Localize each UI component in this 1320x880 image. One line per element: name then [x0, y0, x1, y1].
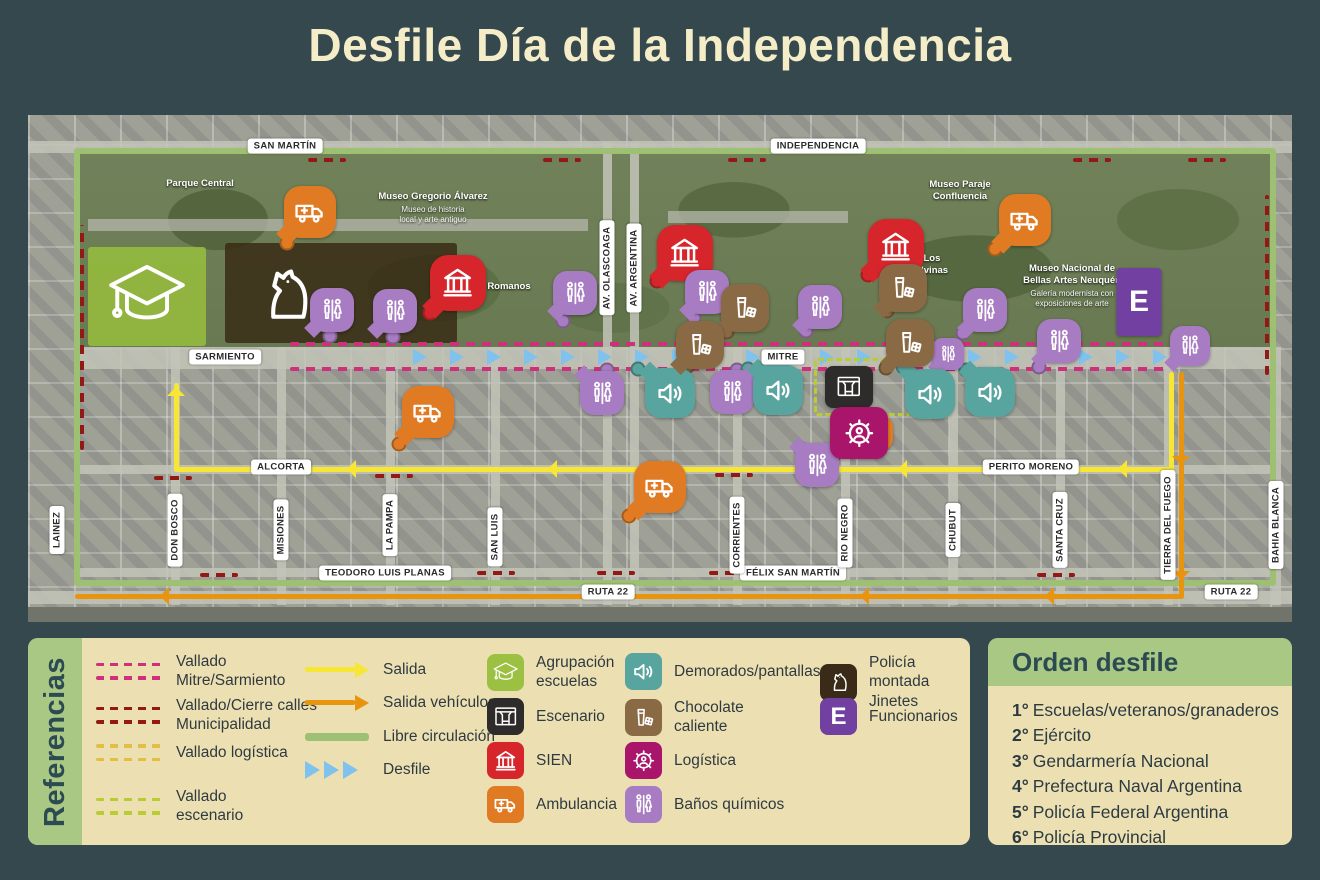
legend-item-vallado-logistica: Vallado logística — [96, 743, 288, 762]
banos-icon — [560, 278, 591, 309]
place-label: Galería modernista con exposiciones de a… — [1030, 289, 1113, 309]
barrier-dashed — [1188, 158, 1226, 162]
desfile-triangle-icon — [1079, 349, 1093, 365]
barrier-dashed — [308, 158, 346, 162]
parade-map: E SAN MARTÍNINDEPENDENCIASARMIENTOMITREA… — [28, 115, 1292, 622]
route-line — [174, 383, 179, 472]
banos-quimicos-marker — [710, 370, 754, 414]
desfile-triangle-icon — [524, 349, 538, 365]
salida-arrow-icon — [355, 662, 369, 678]
barrier-dashed — [200, 573, 238, 577]
legend-item-logistica: Logística — [625, 742, 736, 779]
desfile-triangle-icon — [450, 349, 464, 365]
gear-person-icon — [839, 415, 880, 451]
legend-item-escenario: Escenario — [487, 698, 605, 735]
banos-icon — [1044, 326, 1075, 357]
demorados-pantallas-marker — [905, 369, 955, 419]
barrier-dashed — [543, 158, 581, 162]
banos-icon — [937, 343, 959, 365]
desfile-triangle-icon — [1005, 349, 1019, 365]
speaker-icon — [973, 375, 1008, 410]
ambulancia-marker — [999, 194, 1051, 246]
route-arrow — [889, 460, 907, 478]
amb-icon — [1007, 202, 1043, 238]
orden-desfile-list: 1°Escuelas/veteranos/granaderos 2°Ejérci… — [988, 686, 1292, 850]
street-label: TIERRA DEL FUEGO — [1161, 470, 1176, 580]
ambulancia-marker — [402, 386, 454, 438]
street-label: FÉLIX SAN MARTÍN — [740, 566, 846, 581]
ambulance-icon — [487, 786, 524, 823]
graduation-cap-icon — [104, 254, 190, 340]
route-arrow — [1109, 460, 1127, 478]
parking-strip — [668, 211, 848, 223]
route-line — [1179, 372, 1184, 599]
legend-panel: Referencias Vallado Mitre/Sarmiento Vall… — [28, 638, 970, 845]
barrier-dashed — [80, 225, 84, 450]
speaker-icon — [913, 377, 948, 412]
banos-icon — [587, 378, 618, 409]
banos-quimicos-marker — [373, 289, 417, 333]
place-label: Museo Nacional de Bellas Artes Neuquén — [1023, 263, 1121, 287]
orden-item: 2°Ejército — [1012, 723, 1278, 748]
street-label: AV. OLASCOAGA — [600, 221, 615, 316]
graduation-cap-icon — [487, 654, 524, 691]
legend-item-vallado-municipalidad: Vallado/Cierre calles Municipalidad — [96, 696, 317, 735]
banos-quimicos-marker — [310, 288, 354, 332]
amb-icon — [410, 394, 446, 430]
desfile-triangle-icon — [1116, 349, 1130, 365]
legend-item-chocolate: Chocolate caliente — [625, 698, 744, 737]
temple-icon — [487, 742, 524, 779]
speaker-icon — [625, 653, 662, 690]
street-label: MITRE — [761, 350, 804, 365]
street-label: TEODORO LUIS PLANAS — [319, 566, 451, 581]
route-arrow — [851, 587, 869, 605]
barrier-dashed — [154, 476, 192, 480]
place-label: Museo Paraje Confluencia — [929, 179, 990, 203]
street-label: MISIONES — [274, 500, 289, 561]
page-title: Desfile Día de la Independencia — [0, 18, 1320, 72]
orden-item: 1°Escuelas/veteranos/granaderos — [1012, 698, 1278, 723]
banos-icon — [970, 295, 1001, 326]
place-label: Museo de historia local y arte antiguo — [399, 205, 466, 225]
barrier-dashed — [1073, 158, 1111, 162]
street-label: SANTA CRUZ — [1053, 492, 1068, 568]
barrier-dashed — [1037, 573, 1075, 577]
stage-icon — [487, 698, 524, 735]
route-arrow — [167, 378, 185, 396]
orden-item: 5°Policía Federal Argentina — [1012, 800, 1278, 825]
speaker-icon — [653, 376, 688, 411]
route-arrow — [151, 587, 169, 605]
banos-quimicos-marker — [580, 371, 624, 415]
route-arrow — [1036, 587, 1054, 605]
orden-item: 6°Policía Provincial — [1012, 825, 1278, 850]
street-label: BAHIA BLANCA — [1269, 481, 1284, 569]
street-label: ALCORTA — [251, 460, 311, 475]
desfile-triangles-icon — [305, 761, 358, 779]
ambulancia-marker — [634, 461, 686, 513]
street-label: INDEPENDENCIA — [771, 139, 866, 154]
chocolate-caliente-marker — [879, 264, 927, 312]
legend-item-demorados: Demorados/pantallas — [625, 653, 820, 690]
escenario-marker — [825, 366, 873, 408]
street-label: AV. ARGENTINA — [627, 224, 642, 313]
banos-quimicos-marker — [553, 271, 597, 315]
place-label: Museo Gregorio Álvarez — [378, 191, 487, 203]
amb-icon — [292, 194, 328, 230]
legend-item-banos: Baños químicos — [625, 786, 784, 823]
salida-vehiculos-arrow-icon — [355, 695, 369, 711]
route-arrow — [338, 460, 356, 478]
choc-icon — [886, 271, 920, 305]
street-label: RIO NEGRO — [838, 498, 853, 567]
legend-item-vallado-mitre: Vallado Mitre/Sarmiento — [96, 652, 285, 691]
horse-icon — [820, 664, 857, 701]
banos-quimicos-marker — [1037, 319, 1081, 363]
demorados-pantallas-marker — [645, 368, 695, 418]
choc-icon — [893, 326, 927, 360]
barrier-dashed — [1265, 195, 1269, 375]
logistica-marker — [830, 407, 888, 459]
chocolate-caliente-marker — [676, 321, 724, 369]
banos-icon — [802, 450, 833, 481]
demorados-pantallas-marker — [753, 365, 803, 415]
sien-icon — [665, 233, 704, 272]
street-label: CORRIENTES — [730, 496, 745, 573]
route-line — [74, 580, 1276, 586]
banos-quimicos-marker — [932, 338, 964, 370]
street-label: SAN MARTÍN — [248, 139, 323, 154]
place-label: s Romanos — [479, 281, 530, 293]
street-label: LAINEZ — [50, 506, 65, 554]
legend-item-agrupacion-escuelas: Agrupación escuelas — [487, 653, 614, 692]
stage-icon — [832, 372, 866, 401]
choc-icon — [728, 291, 762, 325]
sien-icon — [438, 263, 477, 302]
banos-icon — [692, 277, 723, 308]
street — [74, 568, 1274, 577]
agrupacion-escuelas-zone — [88, 247, 206, 346]
desfile-triangle-icon — [413, 349, 427, 365]
street-label: SAN LUIS — [488, 508, 503, 567]
poster: { "title": "Desfile Día de la Independen… — [0, 0, 1320, 880]
barrier-dashed — [477, 571, 515, 575]
amb-icon — [642, 469, 678, 505]
legend-item-libre-circulacion: Libre circulación — [305, 727, 495, 746]
place-label: Parque Central — [166, 178, 234, 190]
banos-icon — [1176, 332, 1204, 360]
gear-person-icon — [625, 742, 662, 779]
desfile-triangle-icon — [561, 349, 575, 365]
banos-icon — [317, 295, 348, 326]
banos-icon — [717, 377, 748, 408]
banos-quimicos-marker — [963, 288, 1007, 332]
orden-item: 3°Gendarmería Nacional — [1012, 749, 1278, 774]
street-label: LA PAMPA — [383, 494, 398, 556]
funcionarios-letter: E — [1129, 285, 1149, 319]
barrier-dashed — [597, 571, 635, 575]
banos-quimicos-marker — [798, 285, 842, 329]
chocolate-caliente-marker — [721, 284, 769, 332]
banos-icon — [805, 292, 836, 323]
speaker-icon — [761, 373, 796, 408]
route-arrow — [539, 460, 557, 478]
street-label: DON BOSCO — [168, 493, 183, 566]
sien-marker — [430, 255, 486, 311]
banos-icon — [380, 296, 411, 327]
orden-desfile-title: Orden desfile — [988, 638, 1292, 686]
sien-icon — [876, 227, 915, 266]
street — [277, 347, 286, 605]
street-label: RUTA 22 — [582, 585, 635, 600]
orden-item: 4°Prefectura Naval Argentina — [1012, 774, 1278, 799]
street-label: SARMIENTO — [189, 350, 261, 365]
funcionarios-area: E — [1117, 268, 1162, 336]
choc-icon — [683, 328, 717, 362]
chocolate-caliente-marker — [886, 319, 934, 367]
banos-quimicos-marker — [1170, 326, 1210, 366]
street-label: PERITO MORENO — [983, 460, 1079, 475]
legend-title: Referencias — [39, 657, 72, 827]
barrier-dashed — [375, 474, 413, 478]
restrooms-icon — [625, 786, 662, 823]
legend-item-ambulancia: Ambulancia — [487, 786, 617, 823]
legend-item-salida: Salida — [305, 660, 426, 679]
desfile-triangle-icon — [487, 349, 501, 365]
barrier-dashed — [728, 158, 766, 162]
legend-item-vallado-escenario: Vallado escenario — [96, 787, 243, 826]
parking-strip — [88, 219, 588, 231]
legend-title-bar: Referencias — [28, 638, 82, 845]
street-label: CHUBUT — [946, 503, 961, 557]
demorados-pantallas-marker — [965, 367, 1015, 417]
legend-item-sien: SIEN — [487, 742, 572, 779]
hot-chocolate-icon — [625, 699, 662, 736]
legend-item-salida-vehiculos: Salida vehículos — [305, 693, 496, 712]
map-edge — [28, 607, 1292, 622]
orden-desfile-panel: Orden desfile 1°Escuelas/veteranos/grana… — [988, 638, 1292, 845]
street-label: RUTA 22 — [1205, 585, 1258, 600]
ambulancia-marker — [284, 186, 336, 238]
legend-item-desfile: Desfile — [305, 760, 430, 779]
funcionarios-e-icon: E — [820, 698, 857, 735]
legend-item-funcionarios: E Funcionarios — [820, 698, 958, 735]
barrier-dashed — [715, 473, 753, 477]
